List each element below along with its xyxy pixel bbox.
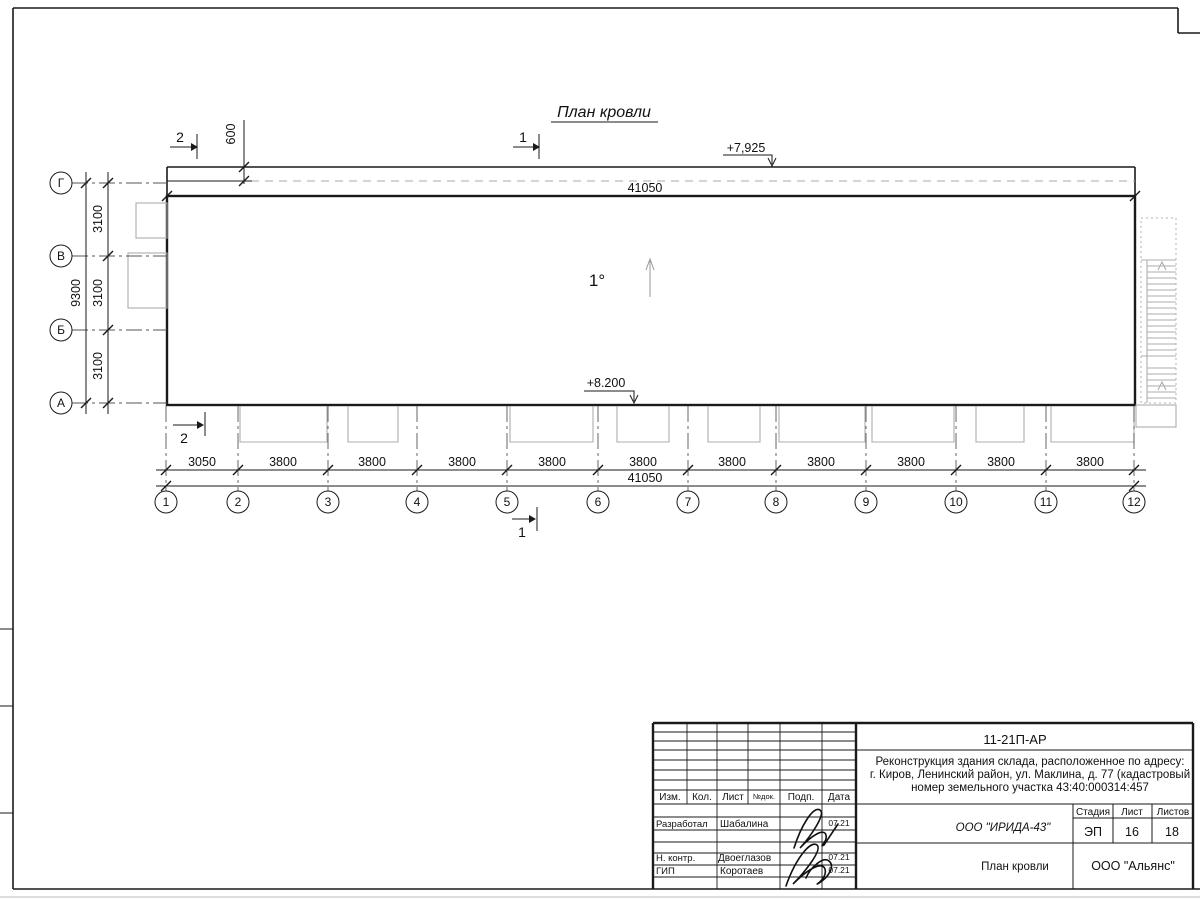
sig-date: 07.21 [828,852,850,862]
canopies [240,406,1134,442]
axis-label-v: В [57,249,65,263]
col-header-kol: Кол. [692,792,712,803]
bay-dim: 3800 [807,455,835,469]
column-bubbles: 1 2 3 4 5 6 7 8 9 10 11 12 [155,491,1145,513]
roof-plan-drawing: План кровли [0,0,1200,900]
project-description-line2: г. Киров, Ленинский район, ул. Маклина, … [870,769,1190,781]
column-label: 3 [325,495,332,509]
elevation-bottom: +8.200 [584,376,638,403]
left-bay-label: 3100 [91,352,105,380]
parapet-dim-label: 600 [224,124,238,145]
bay-dim: 3800 [718,455,746,469]
column-label: 12 [1127,495,1141,509]
bay-dim: 3800 [448,455,476,469]
bay-dim: 3800 [538,455,566,469]
stair-treads-upper [1147,266,1176,350]
bay-dim: 3050 [188,455,216,469]
column-label: 11 [1040,495,1053,509]
elevation-top: +7,925 [723,141,776,166]
external-stair [1136,218,1176,427]
sheets-header: Листов [1157,807,1190,818]
col-header-data: Дата [828,792,851,803]
title-block: Изм. Кол. Лист №док. Подп. Дата Разработ… [653,723,1193,889]
sig-name: Двоеглазов [718,853,771,864]
plan-title: План кровли [551,104,658,122]
left-overall-label: 9300 [69,279,83,307]
left-annexes [128,203,167,308]
axis-label-g: Г [58,176,65,190]
sig-name: Коротаев [720,866,763,877]
section-mark-1-top: 1 [513,129,540,159]
sheet-title: План кровли [981,861,1049,873]
section-marks: 2 1 2 1 [170,129,540,540]
col-header-doc: №док. [753,792,775,801]
slope-label: 1° [589,271,605,290]
sig-name: Шабалина [720,818,769,830]
project-description-line3: номер земельного участка 43:40:000314:45… [911,782,1149,794]
sig-role: ГИП [656,866,675,877]
section-mark-2-top: 2 [170,129,198,159]
roof-main-rect [167,196,1135,405]
column-label: 5 [504,495,511,509]
drawing-sheet: План кровли [0,0,1200,900]
bay-dim: 3800 [269,455,297,469]
section-mark-2-bottom: 2 [173,412,205,446]
bay-dim: 3800 [987,455,1015,469]
section-2-label: 2 [180,430,188,446]
slope-mark: 1° [589,259,654,297]
col-header-izm: Изм. [659,792,680,803]
stage-header: Стадия [1076,807,1110,818]
left-bay-label: 3100 [91,279,105,307]
sig-role: Н. контр. [656,853,695,864]
elevation-top-label: +7,925 [727,141,766,155]
right-arrow-icon [529,515,536,523]
sig-role: Разработал [656,819,708,830]
axis-label-b: Б [57,323,65,337]
project-description-line1: Реконструкция здания склада, расположенн… [875,756,1184,768]
stair-base [1136,405,1176,427]
column-label: 6 [595,495,602,509]
bottom-axes: 3050 3800 3800 3800 3800 3800 3800 3800 … [155,406,1146,513]
building-outline [167,167,1135,405]
top-overall-dimension: 41050 [162,181,1140,201]
section-mark-1-bottom: 1 [512,507,537,540]
section-2-label: 2 [176,129,184,145]
column-label: 1 [163,495,170,509]
bay-dim: 3800 [897,455,925,469]
doc-number: 11-21П-АР [983,732,1046,747]
org-name: ООО "Альянс" [1091,859,1175,873]
elevation-bottom-label: +8.200 [587,376,626,390]
sheet-value: 16 [1125,825,1139,839]
bay-dim: 3800 [629,455,657,469]
column-label: 7 [685,495,692,509]
section-1-label: 1 [519,129,527,145]
column-label: 10 [949,495,963,509]
sig-date: 07.21 [828,818,850,828]
sheet-header: Лист [1121,807,1143,818]
left-bay-label: 3100 [91,205,105,233]
axis-label-a: А [57,396,65,410]
column-label: 8 [773,495,780,509]
column-label: 2 [235,495,242,509]
designer-company: ООО "ИРИДА-43" [956,822,1052,834]
column-label: 9 [863,495,870,509]
sheets-value: 18 [1165,825,1179,839]
top-overall-label: 41050 [628,181,663,195]
stage-value: ЭП [1084,825,1102,839]
plan-title-text: План кровли [557,104,651,121]
bay-dim: 3800 [358,455,386,469]
section-1-label: 1 [518,524,526,540]
right-arrow-icon [197,421,204,429]
bottom-overall-label: 41050 [628,471,663,485]
col-header-podp: Подп. [788,792,815,803]
column-label: 4 [414,495,421,509]
left-axes: Г В Б А 9300 3100 3100 3100 [50,172,167,414]
col-header-list: Лист [722,792,744,803]
bay-dim: 3800 [1076,455,1104,469]
